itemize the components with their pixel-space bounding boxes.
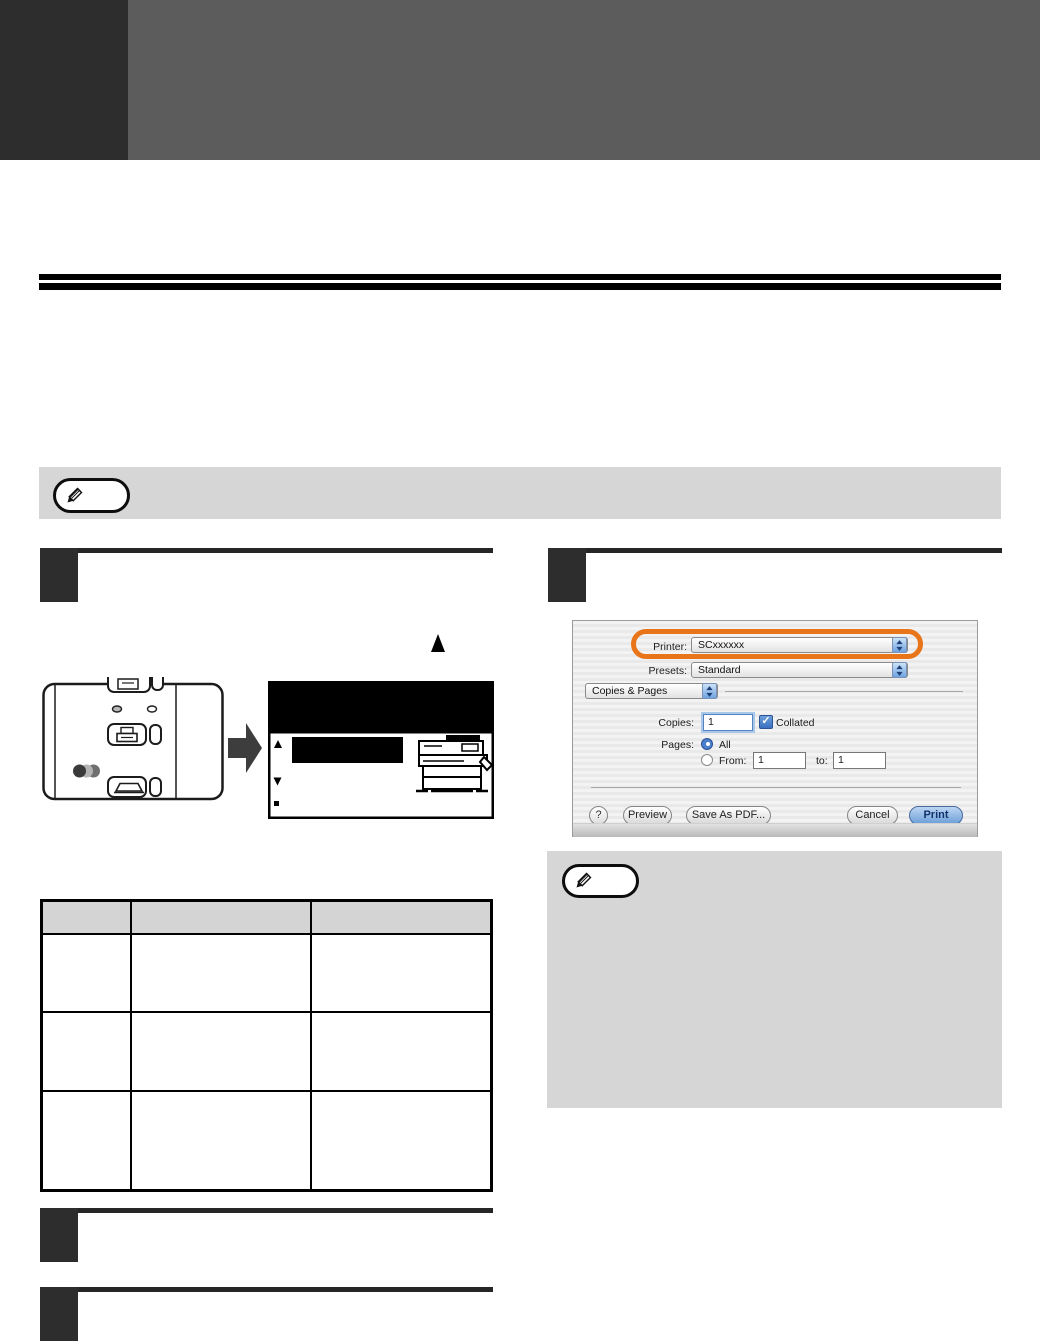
pages-to-label: to: <box>816 755 828 767</box>
table-cell <box>43 1013 130 1090</box>
from-value: 1 <box>758 754 764 766</box>
table-cell <box>132 1013 310 1090</box>
presets-label: Presets: <box>607 665 687 677</box>
manual-page: Printer: SCxxxxxx Presets: Standard Copi… <box>0 0 1040 1341</box>
reference-table <box>40 899 493 1192</box>
table-header-cell <box>132 902 310 933</box>
header-dark-block <box>0 0 128 160</box>
print-dialog: Printer: SCxxxxxx Presets: Standard Copi… <box>572 620 978 837</box>
from-input[interactable]: 1 <box>753 752 806 769</box>
footer-divider <box>591 787 961 788</box>
pages-all-label: All <box>719 739 731 751</box>
popup-stepper-icon[interactable] <box>892 662 907 678</box>
square-bullet-icon <box>274 801 279 806</box>
pane-divider <box>725 691 963 692</box>
collated-label: Collated <box>776 717 815 729</box>
led-indicator <box>148 706 157 712</box>
table-cell <box>312 1092 490 1189</box>
operation-panel-illustration <box>42 677 224 802</box>
popup-stepper-icon[interactable] <box>892 637 907 653</box>
table-cell <box>43 1092 130 1189</box>
printer-select[interactable]: SCxxxxxx <box>691 637 908 653</box>
pages-all-radio[interactable] <box>701 738 713 750</box>
note-band <box>39 467 1001 519</box>
copies-label: Copies: <box>613 717 694 729</box>
cancel-label: Cancel <box>855 809 889 821</box>
popup-stepper-icon[interactable] <box>702 683 717 699</box>
table-cell <box>132 1092 310 1189</box>
section-double-rule-bottom <box>39 283 1001 290</box>
header-band <box>128 0 1040 160</box>
pages-label: Pages: <box>613 739 694 751</box>
note-badge <box>53 478 130 513</box>
save-as-pdf-label: Save As PDF... <box>692 809 765 821</box>
step2-rule <box>40 1208 493 1213</box>
copies-input[interactable]: 1 <box>703 714 753 731</box>
table-cell <box>132 935 310 1011</box>
table-cell <box>312 935 490 1011</box>
right-arrow-icon <box>228 723 262 773</box>
radio-dot-icon <box>706 742 710 746</box>
lcd-title-bar <box>271 684 492 734</box>
pencil-icon <box>572 870 594 892</box>
table-cell <box>312 1013 490 1090</box>
pages-from-label: From: <box>719 755 746 767</box>
step1-rule <box>40 548 493 553</box>
mode-dot <box>73 765 86 778</box>
step1-right-rule <box>548 548 1002 553</box>
collated-checkbox[interactable]: ✓ <box>759 715 773 729</box>
step3-number-box <box>40 1287 78 1341</box>
preview-label: Preview <box>628 809 667 821</box>
printer-label: Printer: <box>607 641 687 653</box>
step1-right-number-box <box>548 548 586 602</box>
up-triangle-icon <box>431 634 445 652</box>
presets-select-value: Standard <box>698 664 741 676</box>
note-box <box>547 851 1002 1108</box>
pages-from-radio[interactable] <box>701 754 713 766</box>
step2-number-box <box>40 1208 78 1262</box>
table-header-cell <box>312 902 490 933</box>
to-value: 1 <box>838 754 844 766</box>
lcd-display-illustration <box>268 681 494 819</box>
dialog-bottom-edge <box>573 823 977 837</box>
presets-select[interactable]: Standard <box>691 662 908 678</box>
table-header-cell <box>43 902 130 933</box>
lcd-selected-item <box>292 737 403 763</box>
pencil-icon <box>63 485 85 507</box>
to-input[interactable]: 1 <box>833 752 886 769</box>
print-label: Print <box>923 809 948 821</box>
note-badge <box>562 864 639 898</box>
copies-value: 1 <box>708 716 714 728</box>
pane-select[interactable]: Copies & Pages <box>585 683 718 699</box>
table-cell <box>43 935 130 1011</box>
copier-illustration <box>416 735 492 791</box>
step1-number-box <box>40 548 78 602</box>
section-double-rule-top <box>39 274 1001 280</box>
pane-select-value: Copies & Pages <box>592 685 667 697</box>
step3-rule <box>40 1287 493 1292</box>
printer-select-value: SCxxxxxx <box>698 639 744 651</box>
check-icon: ✓ <box>761 715 770 727</box>
led-indicator <box>113 706 122 712</box>
help-label: ? <box>595 809 601 821</box>
